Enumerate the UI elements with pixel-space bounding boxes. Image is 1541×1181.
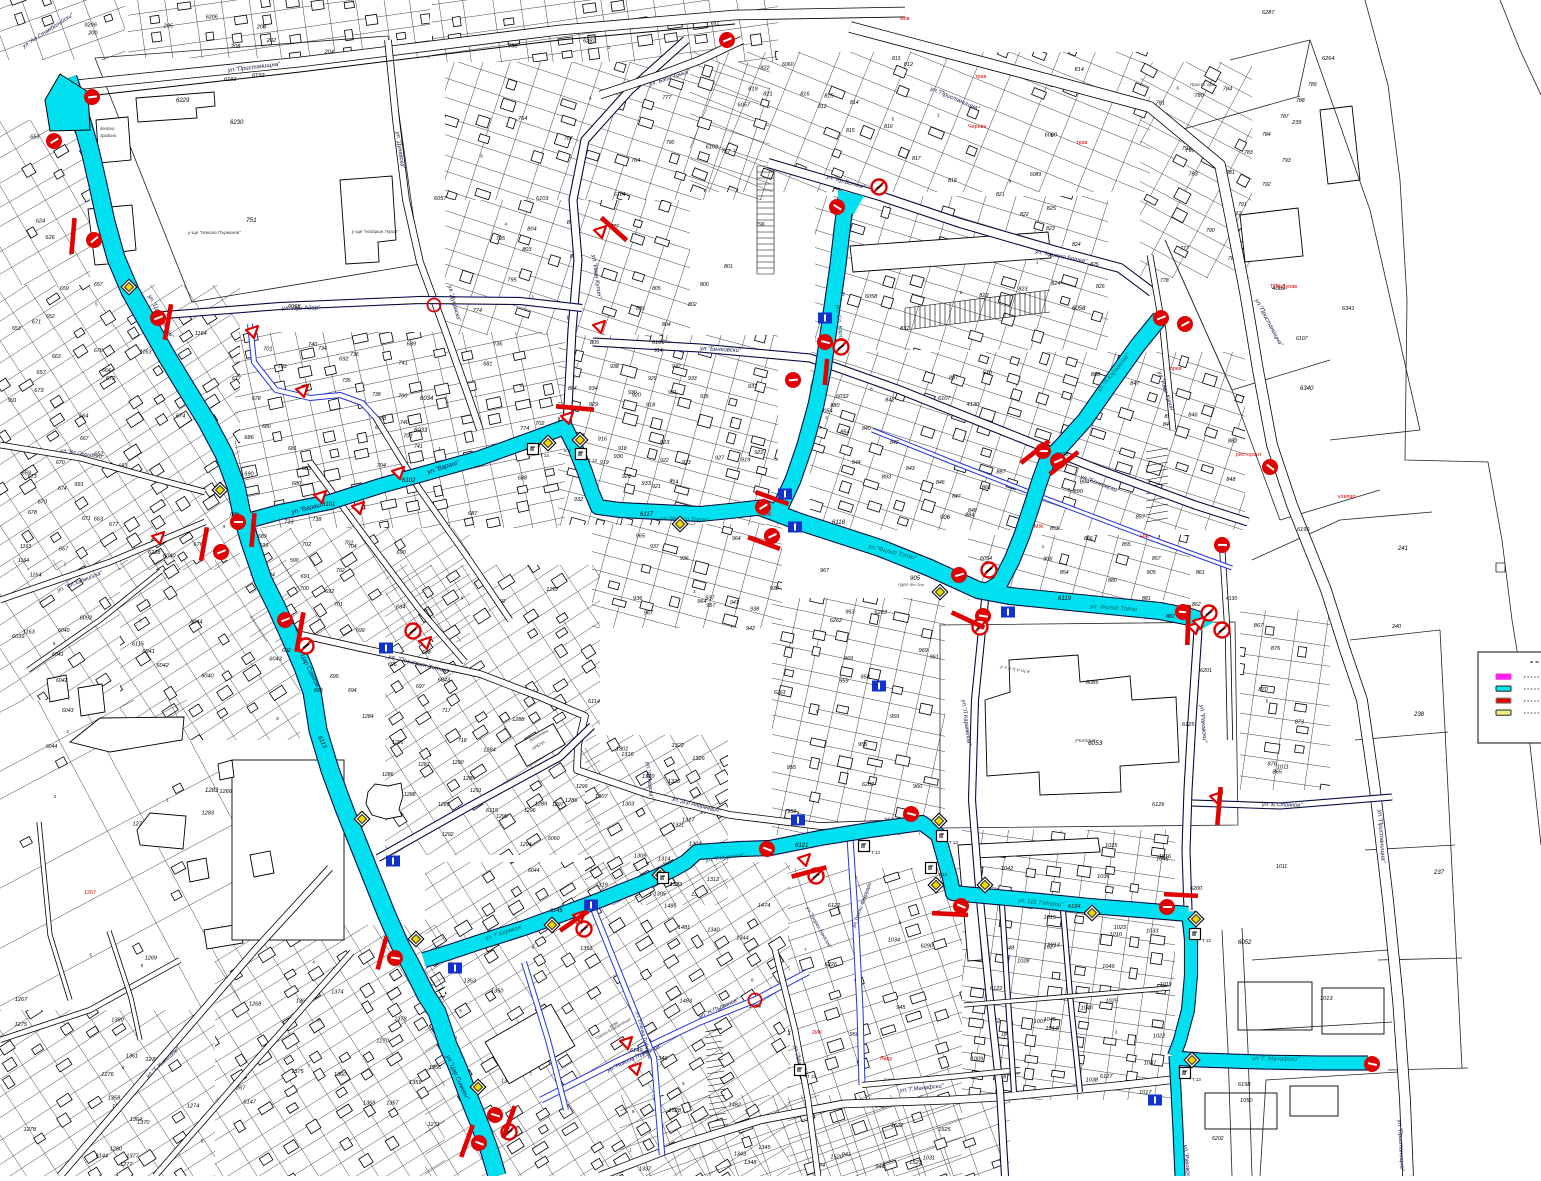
- svg-text:733: 733: [284, 519, 294, 525]
- svg-text:1289: 1289: [535, 801, 547, 807]
- svg-text:6044: 6044: [528, 868, 540, 874]
- svg-text:237: 237: [1433, 870, 1445, 876]
- svg-text:1312: 1312: [707, 877, 720, 883]
- svg-text:854: 854: [1060, 570, 1069, 576]
- svg-text:919: 919: [600, 460, 609, 466]
- svg-text:964: 964: [697, 599, 706, 605]
- svg-text:Т 13: Т 13: [938, 872, 947, 877]
- svg-text:6145: 6145: [550, 908, 563, 914]
- svg-text:626: 626: [45, 235, 55, 241]
- svg-text:856: 856: [1084, 536, 1093, 542]
- svg-text:694: 694: [396, 605, 405, 611]
- svg-text:740: 740: [308, 342, 318, 348]
- svg-text:6192: 6192: [252, 73, 265, 79]
- svg-text:4130: 4130: [967, 402, 980, 408]
- svg-text:6.3: 6.3: [564, 448, 571, 453]
- svg-text:704: 704: [377, 463, 386, 469]
- svg-text:957: 957: [706, 603, 716, 609]
- svg-text:1163: 1163: [20, 544, 31, 550]
- svg-text:1361: 1361: [126, 1053, 138, 1059]
- svg-text:1031: 1031: [923, 1156, 935, 1162]
- svg-text:6098: 6098: [288, 304, 301, 310]
- svg-text:4130: 4130: [1226, 596, 1237, 602]
- svg-text:6144: 6144: [96, 1154, 108, 1160]
- svg-text:865: 865: [1273, 770, 1283, 776]
- svg-text:1348: 1348: [744, 1160, 757, 1166]
- svg-text:1164: 1164: [30, 572, 42, 578]
- svg-text:ТПК Дунав: ТПК Дунав: [1270, 284, 1297, 290]
- svg-text:1356: 1356: [429, 1065, 442, 1071]
- svg-text:1045: 1045: [1043, 1017, 1056, 1023]
- svg-text:1350: 1350: [491, 988, 504, 994]
- svg-text:6034: 6034: [420, 396, 434, 402]
- svg-text:674: 674: [58, 486, 67, 492]
- svg-text:823: 823: [1046, 226, 1055, 232]
- svg-text:1296: 1296: [524, 808, 536, 814]
- svg-text:816: 816: [800, 91, 810, 97]
- svg-text:1309: 1309: [634, 854, 646, 860]
- svg-text:955: 955: [858, 742, 868, 748]
- svg-text:853: 853: [1050, 526, 1059, 532]
- svg-text:846: 846: [936, 480, 945, 486]
- svg-text:846: 846: [1188, 412, 1198, 418]
- svg-text:1010: 1010: [1110, 932, 1123, 938]
- svg-text:700: 700: [398, 394, 408, 400]
- svg-text:958: 958: [860, 675, 870, 681]
- svg-text:1284: 1284: [483, 747, 495, 753]
- svg-text:842: 842: [885, 397, 895, 403]
- svg-text:701: 701: [334, 602, 343, 608]
- svg-text:930: 930: [628, 390, 637, 396]
- svg-text:1522: 1522: [891, 1123, 904, 1129]
- svg-text:805: 805: [652, 286, 661, 292]
- svg-text:678: 678: [28, 510, 38, 516]
- svg-text:701: 701: [263, 346, 272, 352]
- svg-text:200: 200: [87, 30, 98, 36]
- svg-text:1322: 1322: [672, 743, 685, 749]
- svg-text:764: 764: [518, 116, 527, 122]
- svg-text:848: 848: [1226, 477, 1236, 483]
- svg-text:МЖ: МЖ: [1034, 524, 1043, 530]
- svg-text:1303: 1303: [622, 802, 635, 808]
- svg-text:6060: 6060: [548, 836, 560, 842]
- svg-text:676: 676: [94, 348, 103, 354]
- svg-text:1317: 1317: [682, 817, 695, 823]
- svg-text:653: 653: [12, 326, 21, 332]
- svg-text:Чернва: Чернва: [968, 124, 986, 130]
- svg-text:1370: 1370: [137, 1120, 150, 1126]
- svg-text:6206: 6206: [206, 14, 219, 20]
- svg-text:861: 861: [1196, 570, 1205, 576]
- svg-text:6199: 6199: [1297, 527, 1309, 533]
- svg-text:767: 767: [564, 136, 574, 142]
- svg-text:6262: 6262: [830, 618, 843, 624]
- svg-text:953: 953: [845, 609, 855, 615]
- svg-text:1267: 1267: [84, 890, 96, 896]
- svg-text:6229: 6229: [176, 98, 190, 104]
- svg-text:1040: 1040: [1081, 1006, 1094, 1012]
- svg-text:1284: 1284: [362, 714, 374, 720]
- svg-text:919: 919: [741, 458, 750, 464]
- svg-text:6107: 6107: [938, 396, 951, 402]
- svg-text:6085: 6085: [1086, 680, 1099, 686]
- svg-text:800: 800: [700, 282, 709, 288]
- svg-text:6043: 6043: [62, 708, 74, 714]
- svg-text:914: 914: [654, 348, 663, 354]
- svg-text:734: 734: [318, 346, 327, 352]
- svg-text:781: 781: [1226, 170, 1235, 176]
- svg-text:у-ще ”Надзрин Геров”: у-ще ”Надзрин Геров”: [351, 229, 399, 234]
- svg-text:1035: 1035: [1105, 843, 1118, 849]
- svg-text:1299: 1299: [576, 784, 588, 790]
- svg-text:1286: 1286: [382, 772, 394, 778]
- svg-text:670: 670: [56, 460, 65, 466]
- svg-text:1022: 1022: [1153, 1033, 1166, 1039]
- svg-text:933: 933: [688, 376, 697, 382]
- svg-text:6057: 6057: [434, 196, 447, 202]
- svg-text:6125: 6125: [1182, 722, 1195, 728]
- svg-text:680: 680: [292, 481, 302, 487]
- svg-text:787: 787: [1280, 114, 1290, 120]
- svg-text:градина: градина: [100, 133, 117, 138]
- svg-text:1314: 1314: [658, 857, 670, 863]
- svg-text:1046: 1046: [1156, 857, 1169, 863]
- svg-text:932: 932: [672, 364, 681, 370]
- svg-text:6032: 6032: [836, 394, 849, 400]
- svg-text:693: 693: [314, 688, 323, 694]
- svg-text:959: 959: [890, 714, 899, 720]
- svg-text:803: 803: [636, 306, 645, 312]
- svg-text:667: 667: [80, 436, 90, 442]
- svg-text:6126: 6126: [1152, 802, 1165, 808]
- svg-text:862: 862: [1192, 602, 1201, 608]
- svg-text:929: 929: [648, 376, 657, 382]
- svg-text:672: 672: [106, 376, 116, 382]
- svg-text:1378: 1378: [394, 1017, 407, 1023]
- svg-text:664: 664: [102, 368, 111, 374]
- svg-text:854: 854: [840, 430, 849, 436]
- svg-text:6198: 6198: [1238, 1082, 1251, 1088]
- svg-text:6287: 6287: [583, 38, 596, 44]
- svg-text:1025: 1025: [1105, 999, 1118, 1005]
- svg-text:590: 590: [290, 558, 299, 564]
- svg-text:671: 671: [32, 320, 41, 326]
- svg-text:6290: 6290: [921, 944, 934, 950]
- svg-text:659: 659: [30, 135, 39, 141]
- svg-text:1528: 1528: [668, 1108, 681, 1114]
- svg-text:клипар: клипар: [1338, 494, 1356, 500]
- svg-text:923: 923: [660, 440, 670, 446]
- svg-text:703: 703: [403, 433, 413, 439]
- svg-text:6122: 6122: [990, 986, 1003, 992]
- svg-text:241: 241: [1397, 546, 1408, 552]
- svg-text:6058: 6058: [865, 294, 878, 300]
- svg-text:704: 704: [348, 544, 357, 550]
- svg-text:870: 870: [1258, 687, 1268, 693]
- svg-text:692: 692: [282, 648, 291, 654]
- svg-text:у-ще ”Никола Първанов”: у-ще ”Никола Първанов”: [187, 230, 241, 235]
- svg-text:790: 790: [666, 140, 675, 146]
- svg-text:857: 857: [1152, 556, 1162, 562]
- svg-text:1270: 1270: [376, 1038, 389, 1044]
- svg-text:805: 805: [590, 340, 600, 346]
- svg-text:815: 815: [846, 128, 855, 134]
- svg-text:6042: 6042: [56, 678, 68, 684]
- svg-text:Лиду: Лиду: [880, 1056, 893, 1062]
- svg-text:1015: 1015: [1043, 915, 1056, 921]
- svg-text:945: 945: [896, 1005, 906, 1011]
- svg-text:1027: 1027: [1044, 945, 1057, 951]
- svg-text:6201: 6201: [1200, 668, 1212, 674]
- svg-text:686: 686: [244, 435, 254, 441]
- svg-text:741: 741: [398, 360, 407, 366]
- svg-text:767: 767: [721, 149, 731, 155]
- svg-text:1358: 1358: [108, 1096, 121, 1102]
- svg-text:932: 932: [574, 497, 584, 503]
- svg-text:трав: трав: [975, 74, 986, 80]
- svg-text:741: 741: [414, 444, 423, 450]
- svg-text:6040: 6040: [58, 628, 70, 634]
- svg-text:1009: 1009: [971, 1057, 983, 1063]
- svg-text:875: 875: [1271, 646, 1281, 652]
- svg-text:867: 867: [1254, 623, 1264, 629]
- svg-text:1289: 1289: [438, 802, 450, 808]
- svg-text:735: 735: [342, 378, 351, 384]
- svg-text:738: 738: [312, 517, 322, 523]
- svg-text:мов: мов: [900, 16, 910, 22]
- svg-text:240: 240: [1391, 624, 1401, 630]
- svg-text:857: 857: [1136, 515, 1146, 521]
- svg-text:1280: 1280: [110, 1147, 123, 1153]
- svg-text:702: 702: [535, 421, 545, 427]
- svg-text:991: 991: [74, 482, 83, 488]
- svg-text:НЖ: НЖ: [1140, 534, 1149, 540]
- svg-text:1274: 1274: [187, 1104, 199, 1110]
- svg-text:1375: 1375: [291, 1069, 304, 1075]
- svg-text:1340: 1340: [707, 928, 720, 934]
- svg-text:1287: 1287: [546, 587, 559, 593]
- svg-text:1286: 1286: [565, 798, 578, 804]
- svg-text:6104: 6104: [614, 192, 626, 198]
- svg-text:812: 812: [904, 62, 914, 68]
- svg-text:938: 938: [610, 364, 619, 370]
- svg-text:6044: 6044: [46, 744, 57, 750]
- svg-text:202: 202: [266, 38, 277, 44]
- svg-text:819: 819: [948, 178, 957, 184]
- svg-text:6101: 6101: [322, 502, 335, 508]
- svg-text:692: 692: [325, 589, 335, 595]
- svg-text:1163: 1163: [140, 349, 153, 355]
- svg-text:969: 969: [919, 648, 928, 654]
- svg-text:1359: 1359: [409, 1080, 421, 1086]
- svg-text:1267: 1267: [15, 997, 28, 1003]
- svg-text:938: 938: [750, 607, 760, 613]
- svg-text:1038: 1038: [1086, 1078, 1099, 1084]
- svg-text:1360: 1360: [334, 1072, 347, 1078]
- svg-text:1164: 1164: [18, 558, 29, 564]
- svg-text:691: 691: [301, 574, 310, 580]
- svg-text:931: 931: [748, 384, 757, 390]
- svg-text:683: 683: [302, 466, 311, 472]
- svg-text:1295: 1295: [496, 814, 508, 820]
- svg-text:1316: 1316: [621, 752, 634, 758]
- svg-text:1523: 1523: [909, 1160, 922, 1166]
- svg-text:816: 816: [884, 124, 893, 130]
- svg-text:733: 733: [278, 364, 287, 370]
- svg-text:887: 887: [996, 470, 1006, 476]
- svg-text:935: 935: [700, 394, 709, 400]
- svg-text:1011: 1011: [1277, 764, 1289, 770]
- svg-text:6092: 6092: [80, 616, 93, 622]
- svg-text:Т 13: Т 13: [1192, 1077, 1201, 1082]
- svg-text:6226: 6226: [825, 962, 838, 968]
- svg-text:918: 918: [646, 403, 656, 409]
- svg-text:824: 824: [1072, 242, 1081, 248]
- svg-text:1485: 1485: [664, 904, 677, 910]
- svg-text:847: 847: [1130, 381, 1140, 387]
- svg-text:6057: 6057: [738, 103, 751, 109]
- svg-text:1163: 1163: [23, 629, 36, 635]
- svg-text:960: 960: [913, 784, 923, 790]
- svg-text:736: 736: [493, 342, 503, 348]
- svg-text:6230: 6230: [230, 120, 244, 126]
- svg-text:6127: 6127: [1100, 1074, 1113, 1080]
- svg-text:918: 918: [618, 446, 627, 452]
- svg-text:1269: 1269: [145, 955, 157, 961]
- svg-text:880: 880: [1108, 578, 1117, 584]
- svg-text:842: 842: [890, 440, 899, 446]
- svg-text:1266: 1266: [219, 789, 232, 795]
- svg-text:804: 804: [527, 226, 536, 232]
- svg-text:718: 718: [458, 738, 467, 744]
- svg-text:1268: 1268: [249, 1002, 262, 1008]
- svg-text:961: 961: [930, 654, 939, 660]
- svg-text:678: 678: [252, 396, 261, 402]
- svg-text:890: 890: [1074, 489, 1084, 495]
- svg-text:ул.”Луи Айер”: ул.”Луи Айер”: [281, 304, 321, 312]
- svg-text:1023: 1023: [1114, 925, 1127, 931]
- svg-text:1047: 1047: [1144, 1060, 1157, 1066]
- svg-text:848: 848: [968, 508, 977, 514]
- svg-text:837: 837: [900, 326, 910, 332]
- svg-text:936: 936: [633, 596, 643, 602]
- svg-text:6060: 6060: [782, 62, 794, 68]
- svg-text:965: 965: [636, 533, 646, 539]
- svg-text:991: 991: [8, 398, 17, 404]
- svg-text:1277: 1277: [120, 1162, 133, 1168]
- svg-text:942: 942: [746, 626, 755, 632]
- svg-text:1287: 1287: [418, 762, 431, 768]
- svg-text:Т 13: Т 13: [670, 882, 679, 887]
- svg-text:1013: 1013: [1320, 996, 1333, 1002]
- svg-text:1292: 1292: [442, 832, 454, 838]
- svg-text:876: 876: [1268, 761, 1278, 767]
- svg-text:664: 664: [79, 414, 88, 420]
- svg-text:1285: 1285: [463, 776, 476, 782]
- svg-text:791: 791: [1238, 202, 1247, 208]
- svg-text:652: 652: [46, 314, 55, 320]
- svg-text:1377: 1377: [126, 1153, 139, 1159]
- svg-text:6147: 6147: [243, 1100, 256, 1106]
- svg-text:681: 681: [483, 362, 492, 368]
- svg-text:819: 819: [748, 86, 757, 92]
- svg-text:687: 687: [468, 511, 478, 517]
- svg-text:690: 690: [397, 550, 407, 556]
- svg-text:934: 934: [588, 386, 597, 392]
- svg-text:681: 681: [288, 446, 297, 452]
- svg-text:847: 847: [952, 494, 962, 500]
- svg-text:695: 695: [330, 674, 339, 680]
- svg-text:930: 930: [614, 454, 624, 460]
- svg-text:795: 795: [507, 277, 517, 283]
- svg-text:6228: 6228: [148, 550, 161, 556]
- svg-text:Т 13: Т 13: [1202, 938, 1211, 943]
- svg-text:6040: 6040: [201, 673, 214, 679]
- svg-text:6043: 6043: [438, 677, 451, 683]
- svg-text:6287: 6287: [1262, 10, 1275, 16]
- svg-text:689: 689: [407, 341, 416, 347]
- svg-text:688: 688: [518, 476, 528, 482]
- svg-text:888: 888: [1091, 372, 1101, 378]
- svg-text:1036: 1036: [1097, 874, 1110, 880]
- svg-text:1311: 1311: [672, 823, 684, 829]
- svg-text:1283: 1283: [202, 811, 215, 817]
- svg-text:6043: 6043: [269, 657, 282, 663]
- svg-text:1307: 1307: [595, 794, 608, 800]
- svg-text:936: 936: [680, 556, 689, 562]
- svg-text:6106: 6106: [652, 340, 665, 346]
- svg-text:697: 697: [416, 684, 426, 690]
- svg-text:751: 751: [246, 217, 257, 224]
- svg-text:789: 789: [1308, 82, 1317, 88]
- svg-text:906: 906: [1043, 556, 1053, 562]
- svg-text:2ИК: 2ИК: [812, 1030, 823, 1036]
- svg-text:1290: 1290: [452, 760, 464, 766]
- svg-text:6044: 6044: [190, 620, 202, 626]
- svg-text:689: 689: [258, 534, 267, 540]
- svg-text:690: 690: [244, 472, 254, 478]
- svg-text:694: 694: [348, 688, 357, 694]
- svg-text:657: 657: [37, 370, 47, 376]
- svg-text:1481: 1481: [678, 925, 690, 931]
- svg-text:740: 740: [400, 420, 409, 426]
- svg-text:6040: 6040: [163, 553, 176, 559]
- svg-text:677: 677: [232, 376, 242, 382]
- svg-text:736: 736: [350, 352, 359, 358]
- svg-text:1288: 1288: [404, 792, 416, 798]
- svg-text:795: 795: [496, 236, 506, 242]
- svg-text:783: 783: [1244, 150, 1253, 156]
- svg-text:813: 813: [892, 56, 901, 62]
- svg-text:1275: 1275: [15, 1022, 28, 1028]
- svg-text:774: 774: [473, 308, 482, 314]
- svg-text:702: 702: [302, 542, 312, 548]
- svg-text:897: 897: [949, 376, 959, 382]
- svg-text:Т 13: Т 13: [807, 1074, 816, 1079]
- svg-text:1283: 1283: [205, 788, 219, 794]
- svg-text:855: 855: [1122, 542, 1131, 548]
- svg-text:трав: трав: [1076, 140, 1087, 146]
- svg-text:804: 804: [662, 322, 671, 328]
- svg-text:823: 823: [1018, 287, 1028, 293]
- svg-text:680: 680: [262, 424, 271, 430]
- svg-text:893: 893: [882, 475, 892, 481]
- svg-text:670: 670: [38, 500, 48, 506]
- svg-text:790: 790: [1206, 228, 1215, 234]
- svg-text:663: 663: [94, 516, 104, 522]
- svg-text:804: 804: [568, 386, 577, 392]
- svg-text:6107: 6107: [1296, 336, 1309, 342]
